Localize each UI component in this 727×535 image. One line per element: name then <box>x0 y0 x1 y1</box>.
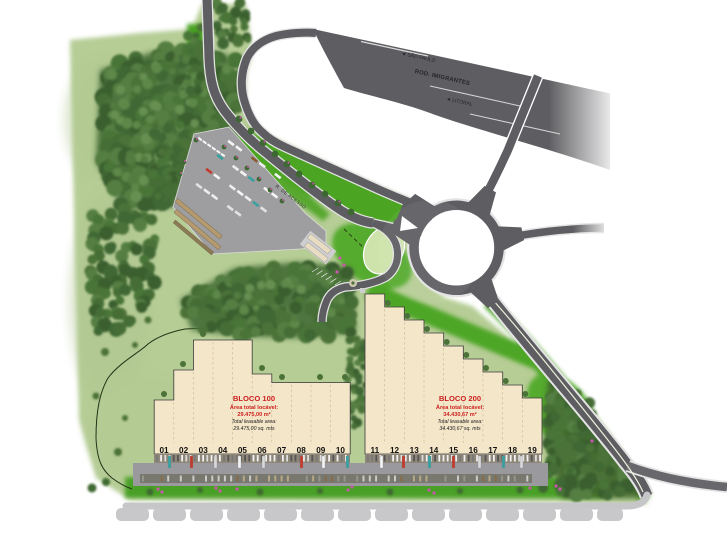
svg-text:13: 13 <box>410 446 420 455</box>
svg-text:Total leasable area:: Total leasable area: <box>437 419 483 425</box>
svg-text:Total leasable area:: Total leasable area: <box>231 419 277 425</box>
svg-text:06: 06 <box>257 446 267 455</box>
svg-text:19: 19 <box>528 446 538 455</box>
svg-text:34.430,67 sq. mts: 34.430,67 sq. mts <box>439 426 481 432</box>
svg-text:18: 18 <box>508 446 518 455</box>
svg-text:09: 09 <box>316 446 326 455</box>
svg-text:04: 04 <box>218 446 228 455</box>
svg-text:16: 16 <box>469 446 479 455</box>
svg-text:34.430,67 m²: 34.430,67 m² <box>443 411 476 418</box>
svg-text:08: 08 <box>297 446 307 455</box>
svg-text:01: 01 <box>159 446 169 455</box>
svg-text:07: 07 <box>277 446 287 455</box>
svg-text:15: 15 <box>449 446 459 455</box>
svg-text:14: 14 <box>429 446 439 455</box>
svg-text:29.475,00 sq. mts: 29.475,00 sq. mts <box>232 426 275 432</box>
svg-text:05: 05 <box>238 446 248 455</box>
svg-text:29.475,00 m²: 29.475,00 m² <box>237 411 270 418</box>
svg-text:Área total locável:: Área total locável: <box>436 404 484 411</box>
svg-text:02: 02 <box>179 446 189 455</box>
svg-text:11: 11 <box>370 446 379 455</box>
svg-text:BLOCO 200: BLOCO 200 <box>439 394 481 403</box>
svg-text:17: 17 <box>488 446 498 455</box>
svg-text:10: 10 <box>336 446 346 455</box>
svg-text:03: 03 <box>199 446 209 455</box>
svg-text:12: 12 <box>390 446 400 455</box>
svg-text:Área total locável:: Área total locável: <box>230 404 278 411</box>
svg-text:BLOCO 100: BLOCO 100 <box>233 394 275 403</box>
